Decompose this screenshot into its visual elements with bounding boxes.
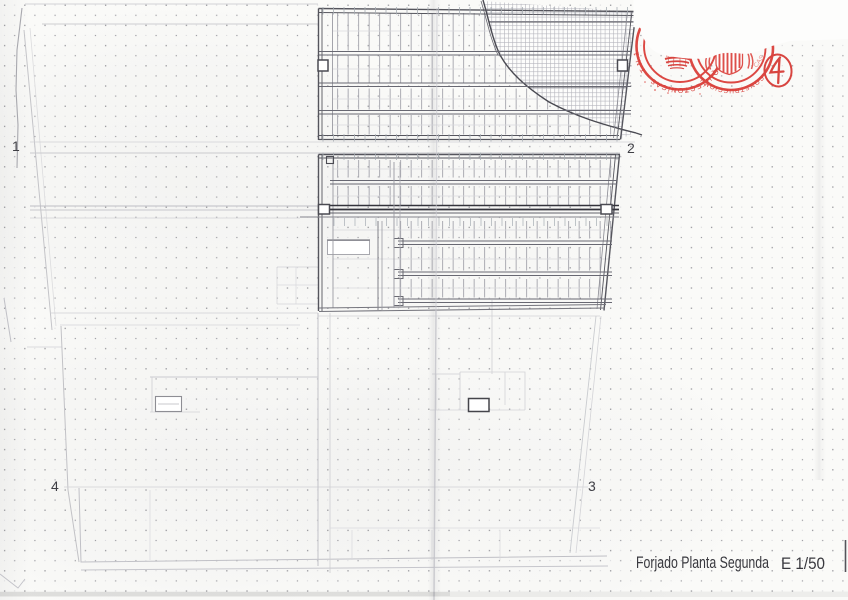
- svg-text:Forjado Planta Segunda: Forjado Planta Segunda: [636, 554, 770, 572]
- svg-text:2: 2: [627, 140, 635, 156]
- svg-text:3: 3: [588, 478, 596, 494]
- svg-text:4: 4: [51, 478, 59, 494]
- svg-text:E 1/50: E 1/50: [781, 554, 825, 573]
- svg-text:1: 1: [12, 138, 20, 154]
